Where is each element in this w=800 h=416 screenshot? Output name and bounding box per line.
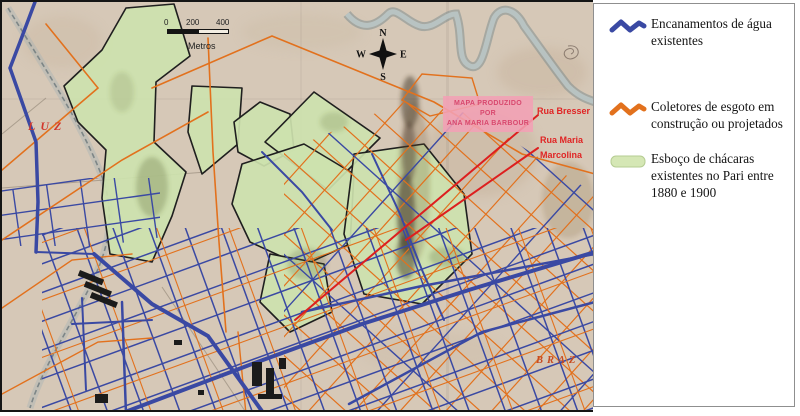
legend-box: Encanamentos de água existentes Coletore… bbox=[593, 3, 795, 407]
zigzag-line-icon bbox=[609, 17, 647, 35]
zigzag-line-icon bbox=[609, 100, 647, 118]
legend-label: Encanamentos de água existentes bbox=[651, 16, 793, 50]
scale-unit-label: Metros bbox=[188, 41, 216, 51]
area-swatch-icon bbox=[609, 152, 647, 170]
compass-s: S bbox=[380, 72, 386, 83]
legend-item-chacaras: Esboço de chácaras existentes no Pari en… bbox=[594, 151, 794, 202]
scale-tick-0: 0 bbox=[164, 18, 168, 27]
legend-item-water-pipes: Encanamentos de água existentes bbox=[594, 16, 794, 50]
watermark-box: MAPA PRODUZIDO POR ANA MARIA BARBOUR bbox=[443, 96, 533, 132]
map-drawing: N S W E bbox=[2, 2, 593, 412]
legend-label: Coletores de esgoto em construção ou pro… bbox=[651, 99, 793, 133]
scale-bar-empty bbox=[198, 29, 229, 34]
chacara-area bbox=[188, 86, 242, 174]
compass-rose: N S W E bbox=[356, 28, 407, 83]
legend-item-sewage: Coletores de esgoto em construção ou pro… bbox=[594, 99, 794, 133]
scale-tick-200: 200 bbox=[186, 18, 199, 27]
compass-n: N bbox=[379, 28, 387, 39]
scale-bar-filled bbox=[167, 29, 198, 34]
watermark-line1: MAPA PRODUZIDO POR bbox=[445, 99, 531, 119]
map-canvas: N S W E 0 200 400 Metros MAPA PRODUZIDO … bbox=[0, 0, 593, 412]
legend-panel: Encanamentos de água existentes Coletore… bbox=[593, 0, 800, 416]
scale-tick-400: 400 bbox=[216, 18, 229, 27]
watermark-line2: ANA MARIA BARBOUR bbox=[445, 119, 531, 129]
compass-e: E bbox=[400, 50, 407, 61]
legend-label: Esboço de chácaras existentes no Pari en… bbox=[651, 151, 793, 202]
compass-w: W bbox=[356, 50, 366, 61]
